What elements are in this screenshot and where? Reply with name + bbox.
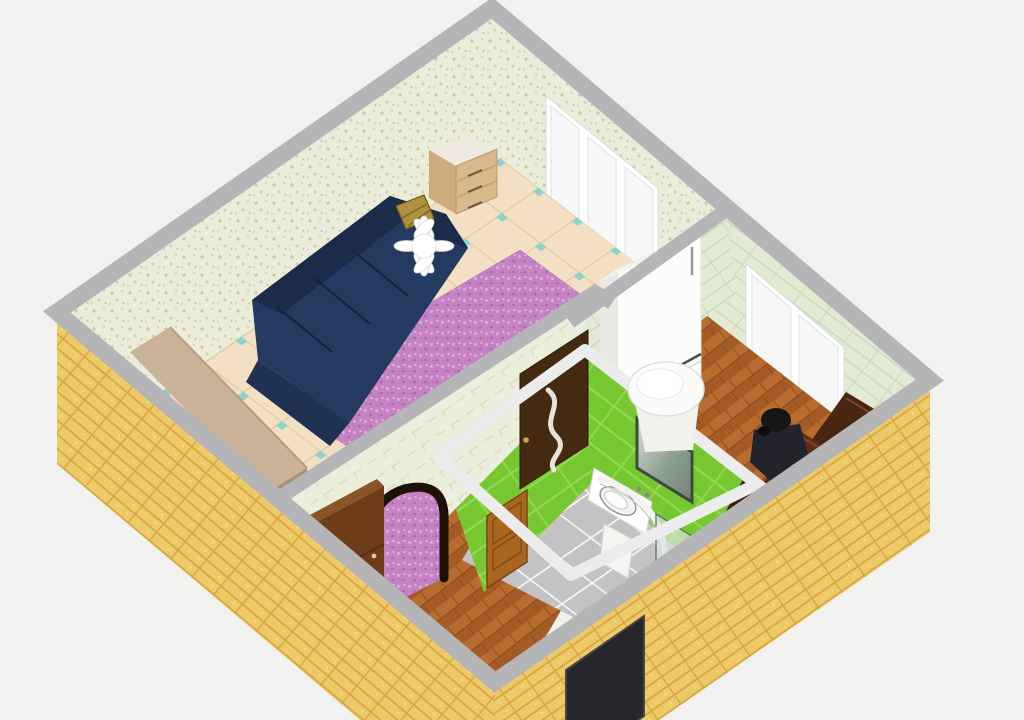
floorplan-svg: [0, 0, 1024, 720]
flower-center: [412, 234, 436, 258]
wardrobe-handle: [372, 554, 377, 559]
faucet: [645, 493, 650, 498]
faucet: [637, 487, 642, 492]
floorplan-render: [0, 0, 1024, 720]
person-hair-bun: [758, 426, 770, 436]
toilet-lid: [637, 369, 683, 399]
door-knob: [523, 437, 529, 443]
